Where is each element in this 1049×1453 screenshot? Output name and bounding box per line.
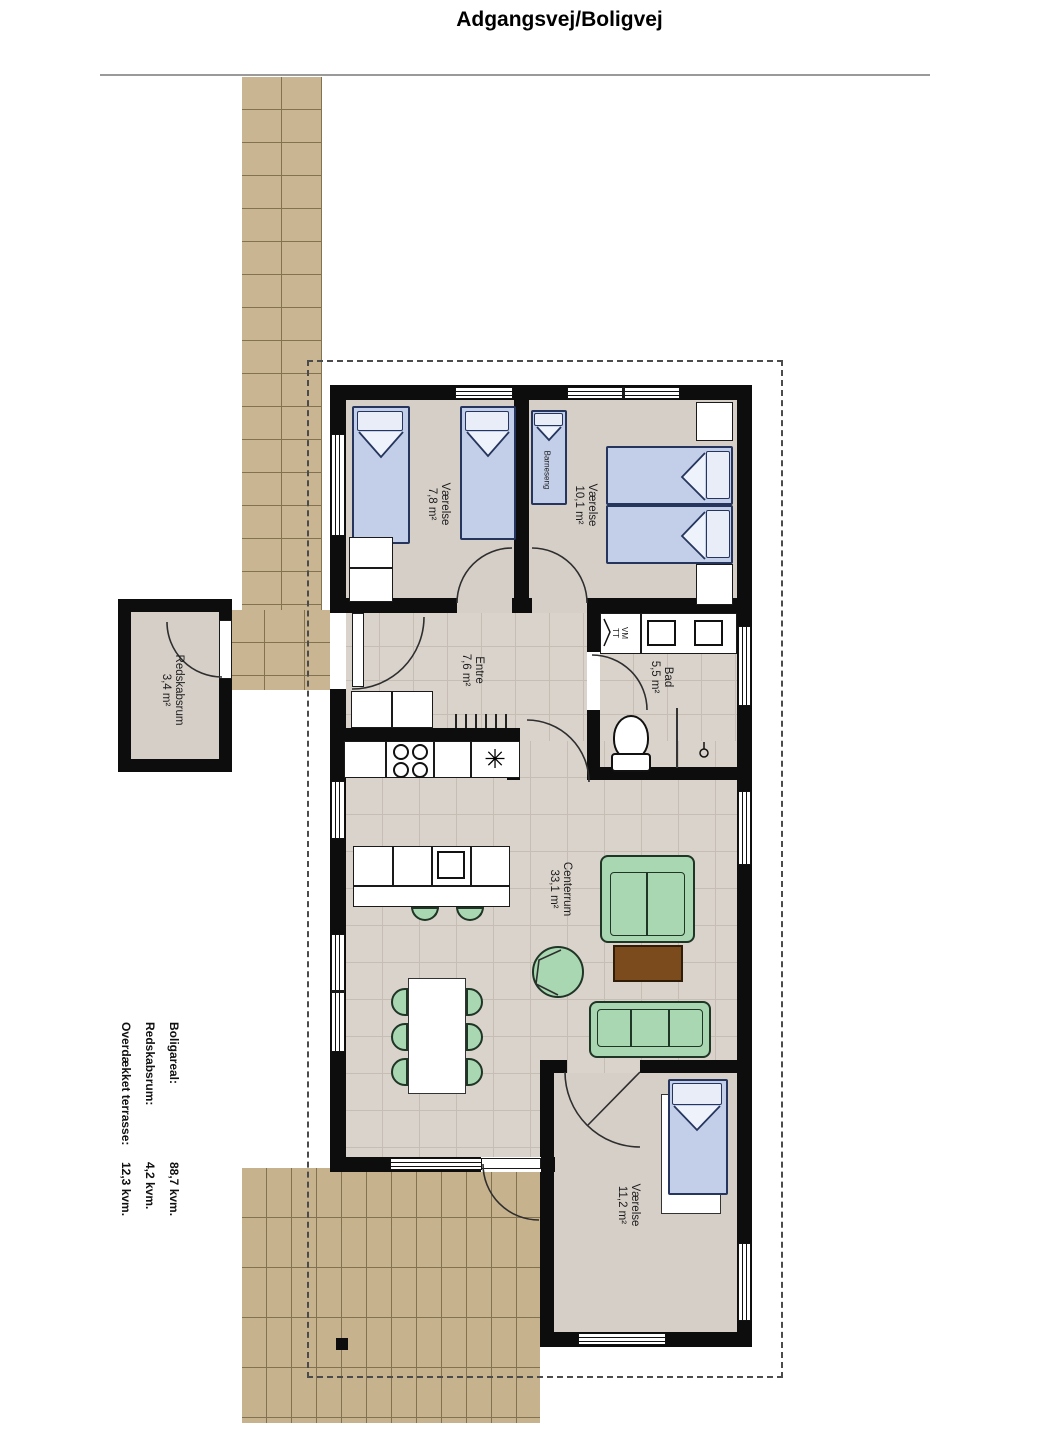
room-label-entre: Entre 7,6 m² (459, 654, 485, 687)
blanket-fold (682, 453, 705, 500)
room-name: Værelse (586, 484, 598, 527)
room-label-bedroom1: Værelse 7,8 m² (425, 483, 451, 526)
door-leaf-bedroom3 (588, 1072, 640, 1125)
door-arc-bedroom1 (457, 548, 512, 603)
door-arc-front-door (352, 617, 424, 689)
floor-plan-page: Adgangsvej/Boligvej (0, 0, 1049, 1453)
room-area: 11,2 m² (616, 1186, 628, 1224)
blanket-fold (674, 1106, 720, 1130)
room-area: 33,1 m² (548, 869, 560, 908)
stat-label: Redskabsrum: (138, 1022, 162, 1162)
room-area: 5,5 m² (649, 661, 661, 694)
washer-hatch (604, 619, 610, 646)
door-arc-bedroom2 (532, 548, 587, 603)
stat-label: Overdækket terrasse: (114, 1022, 138, 1162)
shower-drain-icon (700, 749, 708, 757)
stat-row: Overdækket terrasse: 12,3 kvm. (114, 1022, 138, 1254)
room-area: 10,1 m² (573, 485, 585, 524)
crib-label: Barneseng (543, 451, 552, 490)
blanket-fold (467, 432, 509, 456)
stat-value: 4,2 kvm. (138, 1162, 162, 1209)
room-name: Værelse (439, 483, 451, 526)
room-area: 7,6 m² (460, 654, 472, 687)
room-label-bedroom3: Værelse 11,2 m² (615, 1184, 641, 1227)
blanket-fold (537, 427, 561, 440)
stat-label: Boligareal: (162, 1022, 186, 1162)
room-label-shed: Redskabsrum 3,4 m² (159, 655, 185, 726)
stat-value: 12,3 kvm. (114, 1162, 138, 1216)
room-name: Centerrum (561, 862, 573, 916)
area-statistics: Boligareal: 88,7 kvm. Redskabsrum: 4,2 k… (114, 1022, 186, 1254)
washer-label: VM TT (611, 627, 629, 639)
room-name: Entre (473, 656, 485, 684)
stat-value: 88,7 kvm. (162, 1162, 186, 1216)
chair-back-line (536, 950, 561, 995)
room-name: Værelse (629, 1184, 641, 1227)
door-arc-terrace (483, 1164, 539, 1220)
room-label-livingroom: Centerrum 33,1 m² (547, 862, 573, 916)
room-name: Bad (662, 667, 674, 687)
door-arc-entre (527, 720, 589, 782)
stat-row: Redskabsrum: 4,2 kvm. (138, 1022, 162, 1254)
stat-row: Boligareal: 88,7 kvm. (162, 1022, 186, 1254)
room-label-bath: Bad 5,5 m² (648, 661, 674, 694)
blanket-fold (682, 512, 705, 559)
door-arc-bath (592, 655, 647, 710)
room-area: 3,4 m² (160, 674, 172, 707)
room-name: Redskabsrum (173, 655, 185, 726)
room-area: 7,8 m² (426, 488, 438, 521)
room-label-bedroom2: Værelse 10,1 m² (572, 484, 598, 527)
blanket-fold (359, 432, 403, 457)
